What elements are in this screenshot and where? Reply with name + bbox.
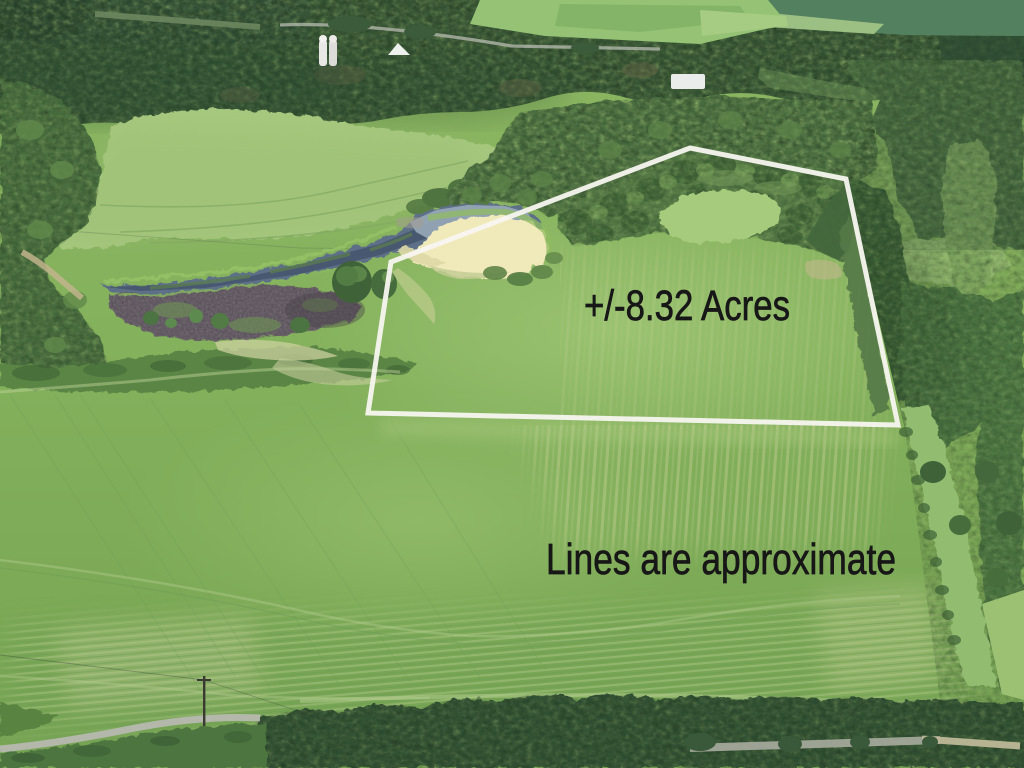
svg-text:+/-8.32 Acres: +/-8.32 Acres	[584, 282, 790, 330]
svg-text:Lines are approximate: Lines are approximate	[546, 535, 896, 584]
